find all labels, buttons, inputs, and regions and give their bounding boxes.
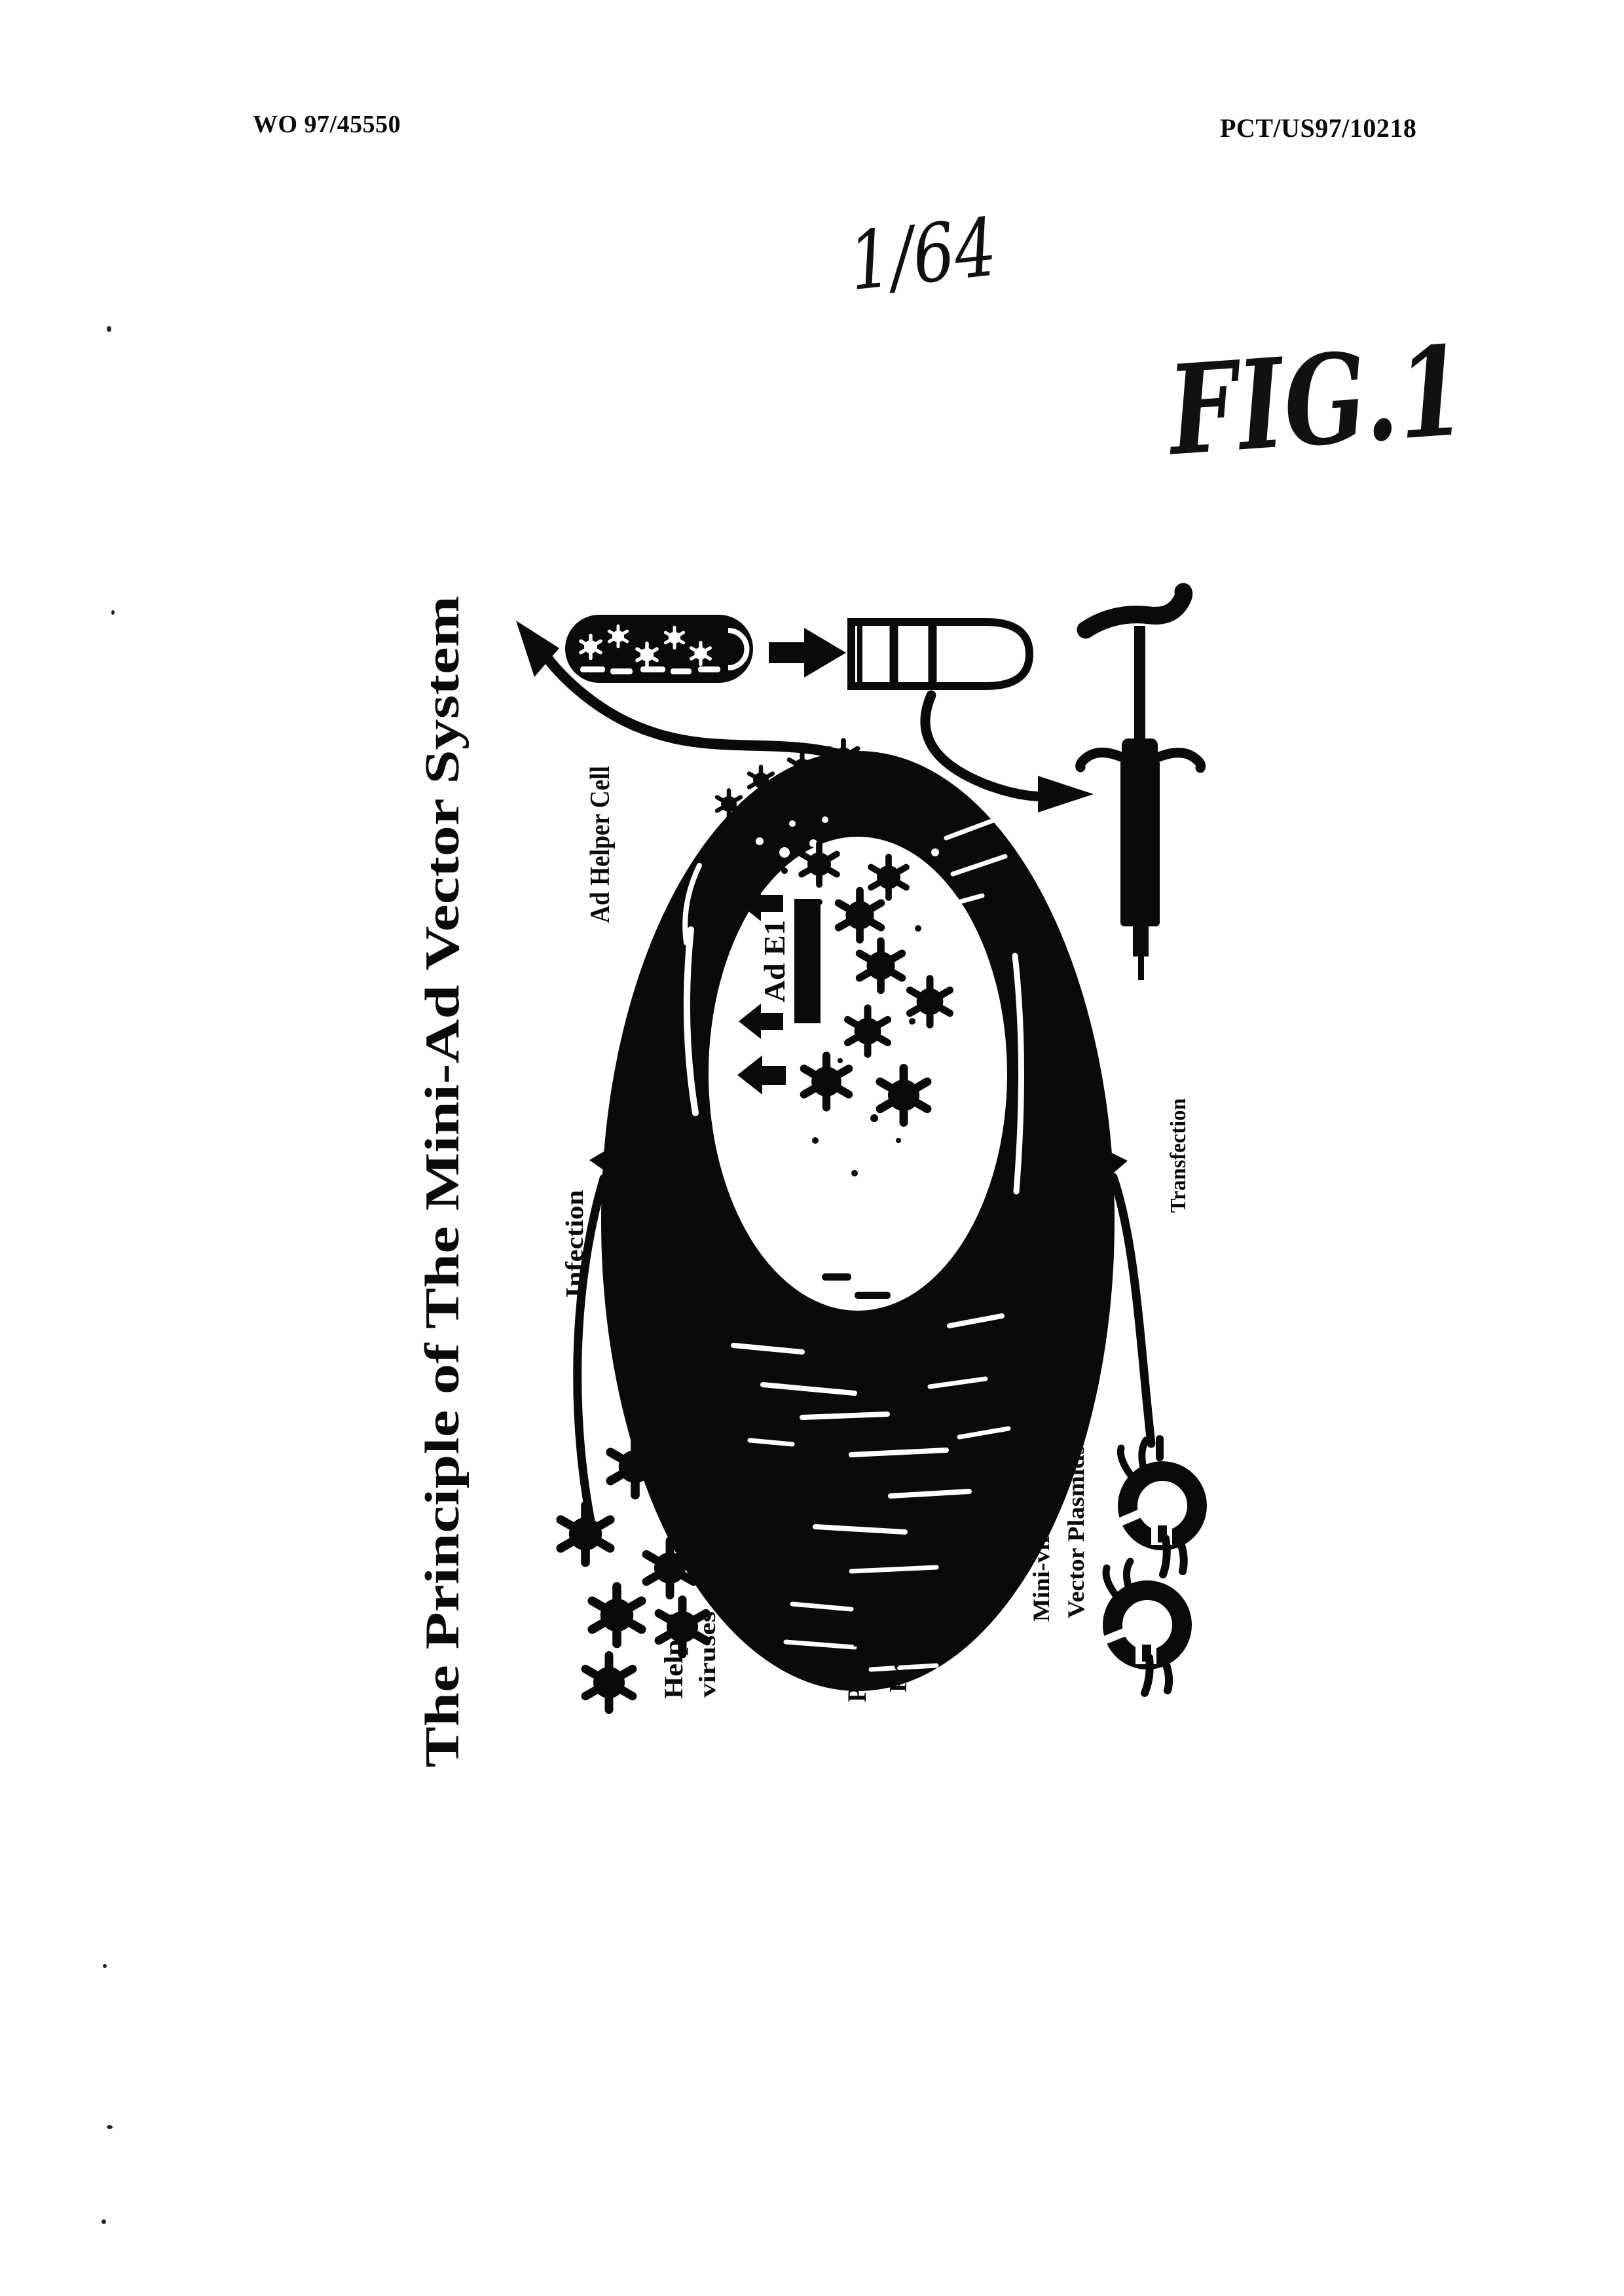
- figure-number: FIG.1: [1164, 318, 1471, 483]
- scan-artifact-dot: [103, 1964, 107, 1968]
- purification-arrow: [769, 628, 846, 678]
- figure-canvas: The Principle of The Mini-Ad Vector Syst…: [393, 563, 1428, 1807]
- label-infection: Infection: [561, 1190, 589, 1298]
- fill-syringe-arrowhead: [1038, 776, 1094, 812]
- label-packaging-2: Proteins: [885, 1601, 912, 1692]
- scan-artifact-dot: [107, 326, 111, 332]
- scan-artifact-dot: [101, 2219, 106, 2224]
- patent-sheet: WO 97/45550 PCT/US97/10218 1/64 FIG.1: [0, 0, 1624, 2296]
- publication-number: WO 97/45550: [253, 110, 401, 139]
- label-helper-viruses-2: viruses: [694, 1611, 720, 1698]
- application-number: PCT/US97/10218: [1220, 113, 1416, 143]
- transfection-arrow: [1113, 1177, 1151, 1444]
- product-vial: [851, 622, 1029, 686]
- syringe-handle: [1086, 592, 1184, 630]
- syringe: [1080, 592, 1201, 980]
- ad-e1-gene-bar: [794, 899, 821, 1023]
- label-transfection: Transfection: [1166, 1098, 1190, 1212]
- mini-viral-plasmid: [1112, 1439, 1197, 1575]
- sheet-number: 1/64: [845, 201, 1001, 309]
- virus-icon: [580, 1651, 638, 1714]
- virus-vial: [565, 615, 753, 683]
- label-plasmids-1: Mini-viral: [1028, 1514, 1054, 1622]
- label-helper-viruses-1: Helper: [659, 1614, 688, 1699]
- virus-icon: [586, 1582, 648, 1649]
- scan-artifact-dot: [107, 2125, 113, 2129]
- syringe-barrel: [1120, 759, 1160, 926]
- label-plasmids-2: Vector Plasmids: [1063, 1445, 1089, 1618]
- figure-title: The Principle of The Mini-Ad Vector Syst…: [416, 596, 470, 1768]
- mini-viral-plasmid: [1097, 1561, 1182, 1693]
- label-packaging-1: Packaging: [842, 1590, 872, 1702]
- label-ad-helper-cell: Ad Helper Cell: [585, 766, 616, 923]
- scan-artifact-dot: [111, 610, 115, 615]
- label-ad-e1: Ad E1: [758, 920, 791, 1002]
